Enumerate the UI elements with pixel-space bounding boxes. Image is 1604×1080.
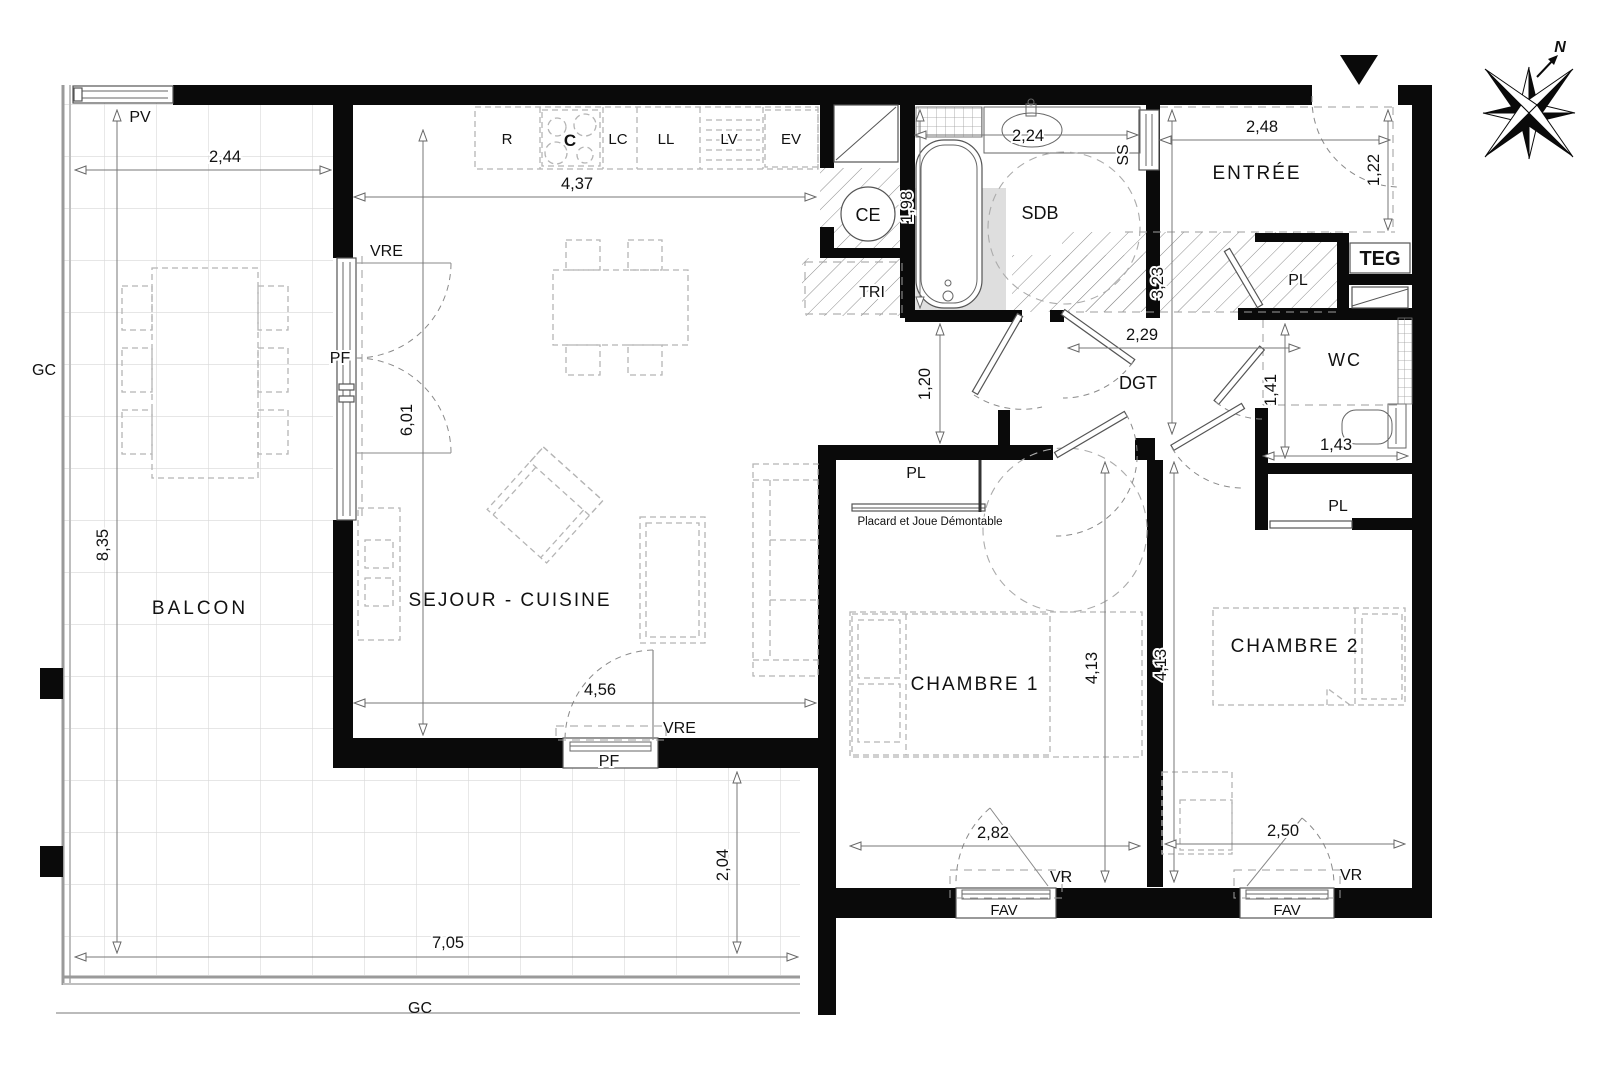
- floor-plan-drawing: 2,44 8,35 7,05 2,04 4,37 4,56 6,01 1,98 …: [0, 0, 1604, 1080]
- dim-ch2-depth: 4,13: [1152, 649, 1170, 681]
- dining-table: [553, 240, 688, 375]
- label-fav-ch2: FAV: [1273, 902, 1300, 919]
- dim-passage: 1,20: [916, 368, 934, 400]
- label-gc-bottom: GC: [408, 1000, 432, 1017]
- wall-tiles: [916, 107, 982, 137]
- vre-pf-west-window: [337, 256, 451, 520]
- duct: [834, 105, 898, 162]
- label-fav-ch1: FAV: [990, 902, 1017, 919]
- railing-post: [40, 846, 63, 877]
- label-ce: CE: [855, 205, 880, 225]
- desk-ch2: [1162, 772, 1232, 854]
- bathtub: [916, 140, 982, 308]
- vre-pf-south-window: [556, 650, 666, 768]
- dim-sejour-width: 4,56: [584, 681, 616, 699]
- kitchen-counter: [475, 107, 818, 169]
- dim-sdb-width: 2,24: [1012, 127, 1044, 145]
- label-vre-south: VRE: [663, 720, 696, 737]
- label-tri: TRI: [859, 284, 885, 301]
- room-label-balcon: BALCON: [152, 598, 248, 619]
- room-label-chambre2: CHAMBRE 2: [1231, 636, 1360, 657]
- label-pf-south: PF: [599, 753, 620, 770]
- label-pl-chambre2: PL: [1328, 498, 1348, 515]
- floor-plan: 2,44 8,35 7,05 2,04 4,37 4,56 6,01 1,98 …: [0, 0, 1604, 1080]
- kitchen-label-ev: EV: [781, 131, 801, 148]
- dim-balcon-bottom-width: 7,05: [432, 934, 464, 952]
- coffee-table: [640, 517, 705, 643]
- ch1-door-leaf: [1054, 411, 1127, 457]
- dim-baignoire: 1,98: [898, 191, 916, 223]
- room-label-sejour: SEJOUR - CUISINE: [408, 590, 611, 611]
- label-gc-left: GC: [32, 362, 56, 379]
- armchair: [487, 447, 603, 563]
- pv-window: [73, 86, 173, 103]
- label-pl-chambre1: PL: [906, 465, 926, 482]
- ch2-closet-slider: [1270, 521, 1352, 528]
- dim-ch1-depth: 4,13: [1083, 652, 1101, 684]
- dim-entree-depth: 1,22: [1365, 154, 1383, 186]
- kitchen-label-c: C: [564, 131, 576, 150]
- sdb-door-leaf: [972, 314, 1022, 395]
- dim-wc-width: 1,43: [1320, 436, 1352, 454]
- label-pf-west: PF: [330, 350, 351, 367]
- room-label-sdb: SDB: [1021, 203, 1058, 223]
- kitchen-label-lv: LV: [720, 131, 737, 148]
- dim-balcon-height: 8,35: [94, 529, 112, 561]
- north-label: N: [1554, 39, 1566, 56]
- wc-door-leaf: [1214, 346, 1264, 404]
- dim-entree-width: 2,48: [1246, 118, 1278, 136]
- room-label-chambre1: CHAMBRE 1: [911, 674, 1040, 695]
- label-vr-ch2: VR: [1340, 867, 1362, 884]
- dim-sejour-height: 6,01: [398, 404, 416, 436]
- label-pv: PV: [129, 109, 151, 126]
- wc-wall-tiles: [1398, 318, 1412, 404]
- kitchen-label-r: R: [502, 131, 513, 148]
- note-placard: Placard et Joue Démontable: [857, 516, 1002, 528]
- balcony-area: [40, 85, 800, 1013]
- dim-balcon-width: 2,44: [209, 148, 241, 166]
- hall-door-leaf: [1061, 310, 1134, 365]
- dim-balcon-bottom-height: 2,04: [714, 849, 732, 881]
- room-label-dgt: DGT: [1119, 373, 1157, 393]
- dim-cuisine-width: 4,37: [561, 175, 593, 193]
- dim-ch1-width: 2,82: [977, 824, 1009, 842]
- turning-circle-ch1: [983, 448, 1147, 612]
- kitchen-label-ll: LL: [658, 131, 675, 148]
- label-ss: SS: [1115, 144, 1132, 165]
- dim-ch2-width: 2,50: [1267, 822, 1299, 840]
- room-label-wc: WC: [1328, 350, 1362, 370]
- room-label-entree: ENTRÉE: [1212, 163, 1301, 184]
- railing-post: [40, 668, 63, 699]
- entry-door-swing: [1312, 96, 1398, 187]
- dim-wc-depth: 1,41: [1262, 374, 1280, 406]
- ss-window: [1139, 110, 1159, 170]
- entry-marker-triangle: [1340, 55, 1378, 85]
- kitchen-label-lc: LC: [608, 131, 627, 148]
- ch2-door-leaf: [1171, 403, 1245, 450]
- compass-rose: N: [1483, 39, 1575, 159]
- dim-dgt-width: 2,29: [1126, 326, 1158, 344]
- label-teg: TEG: [1359, 248, 1400, 270]
- label-vre-west: VRE: [370, 243, 403, 260]
- couch: [753, 464, 818, 676]
- dim-hall-depth: 3,23: [1149, 267, 1167, 299]
- label-vr-ch1: VR: [1050, 869, 1072, 886]
- label-pl-entree: PL: [1288, 272, 1308, 289]
- tv-cabinet: [358, 508, 400, 640]
